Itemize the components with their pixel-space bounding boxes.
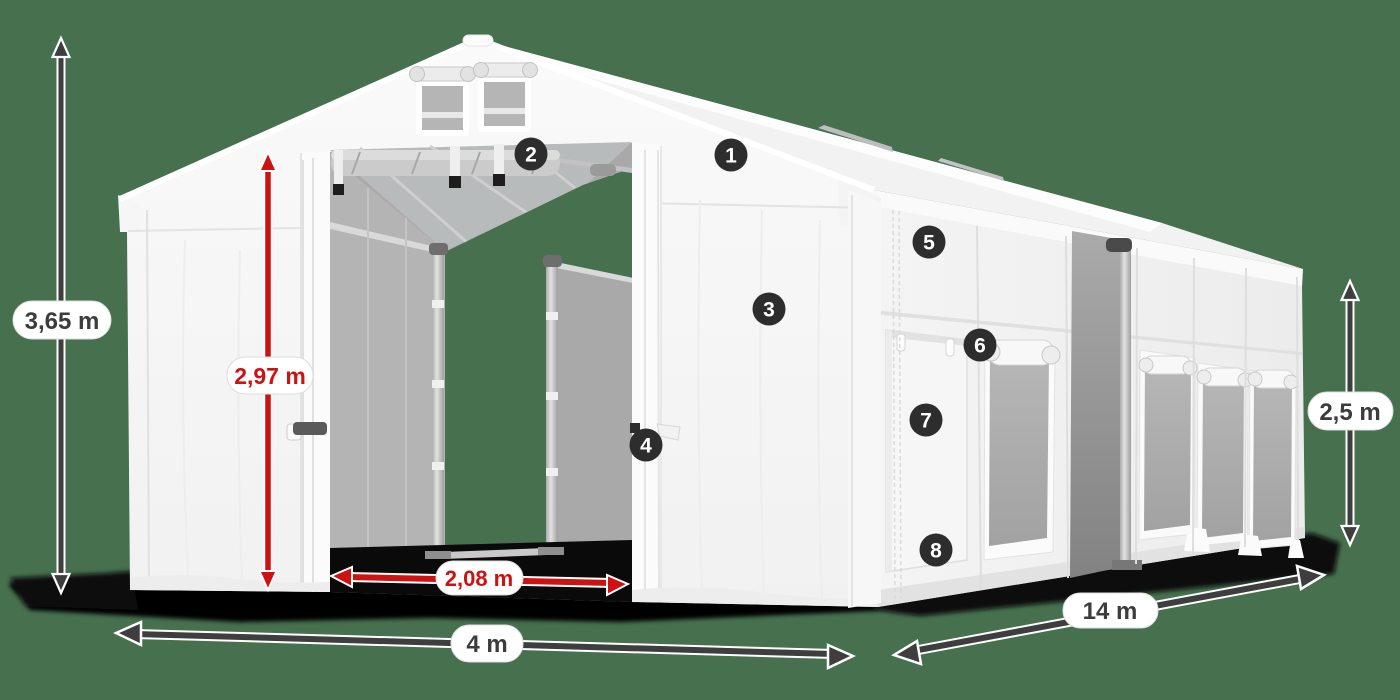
svg-text:4 m: 4 m xyxy=(466,631,507,658)
svg-text:2,5 m: 2,5 m xyxy=(1319,399,1380,426)
svg-text:2,08 m: 2,08 m xyxy=(445,566,514,591)
svg-text:3: 3 xyxy=(763,299,775,322)
svg-text:5: 5 xyxy=(923,232,935,255)
svg-text:7: 7 xyxy=(920,410,932,433)
svg-text:8: 8 xyxy=(930,540,942,563)
svg-text:4: 4 xyxy=(640,435,652,458)
svg-text:3,65 m: 3,65 m xyxy=(25,308,100,335)
svg-text:2,97 m: 2,97 m xyxy=(234,363,306,389)
svg-text:6: 6 xyxy=(974,335,986,358)
svg-text:1: 1 xyxy=(725,145,737,168)
svg-text:2: 2 xyxy=(525,144,537,167)
svg-text:14 m: 14 m xyxy=(1083,598,1138,625)
